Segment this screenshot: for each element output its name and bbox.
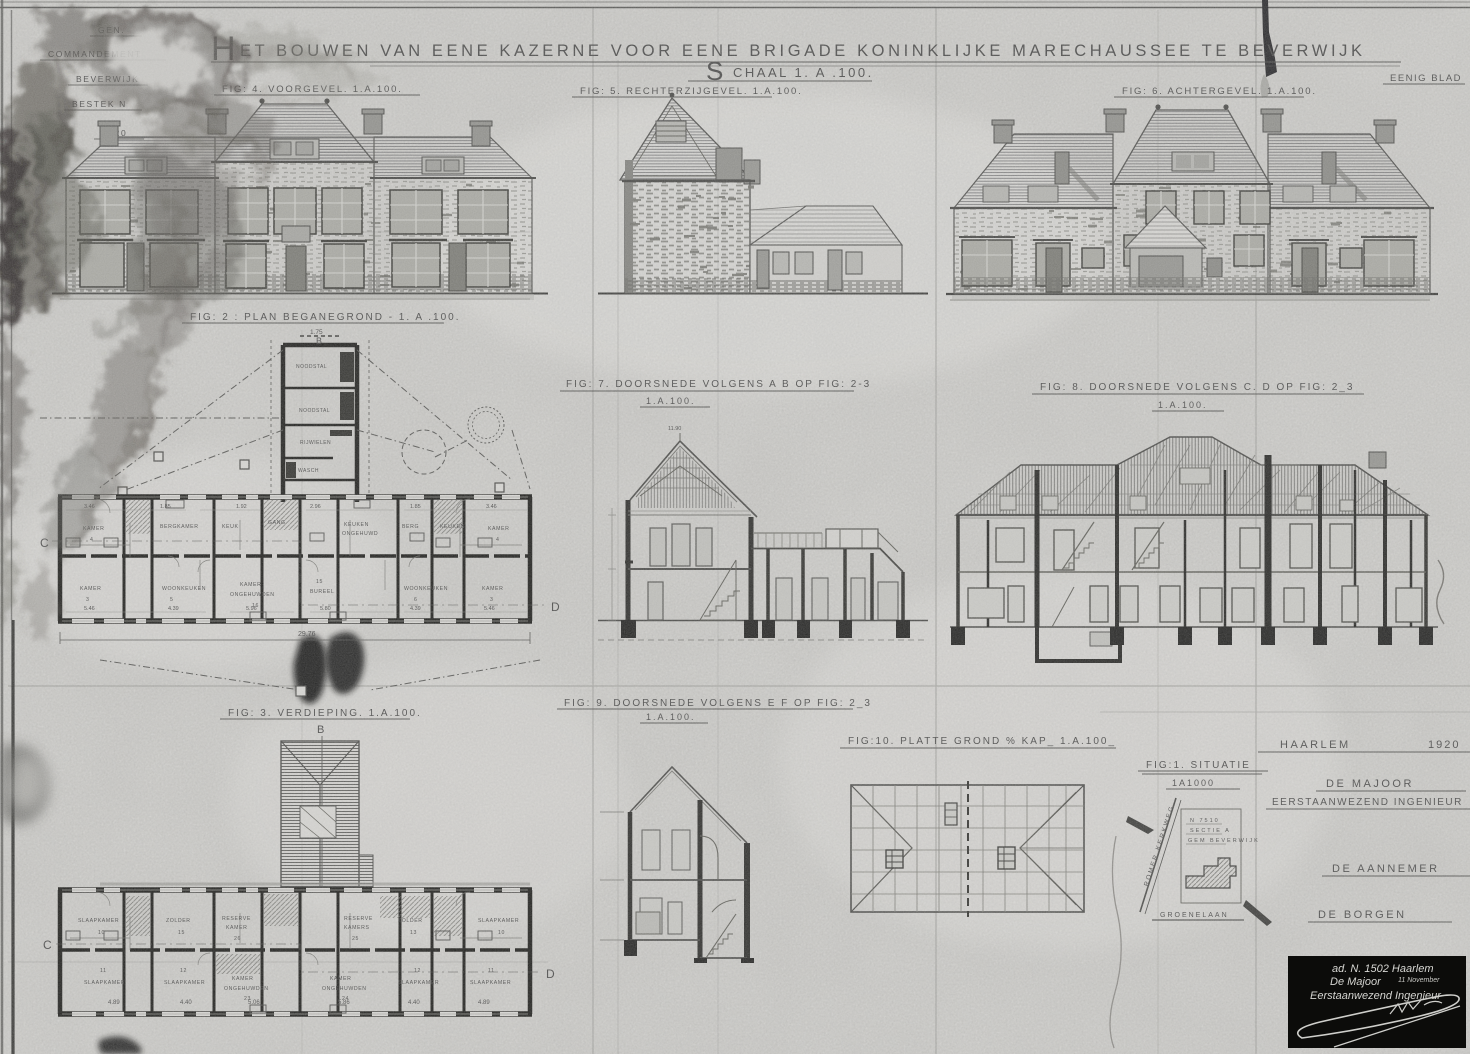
svg-text:ad. N. 1502 Haarlem: ad. N. 1502 Haarlem xyxy=(1332,963,1434,975)
svg-text:11 November: 11 November xyxy=(1398,977,1440,984)
svg-text:De Majoor: De Majoor xyxy=(1330,976,1382,988)
